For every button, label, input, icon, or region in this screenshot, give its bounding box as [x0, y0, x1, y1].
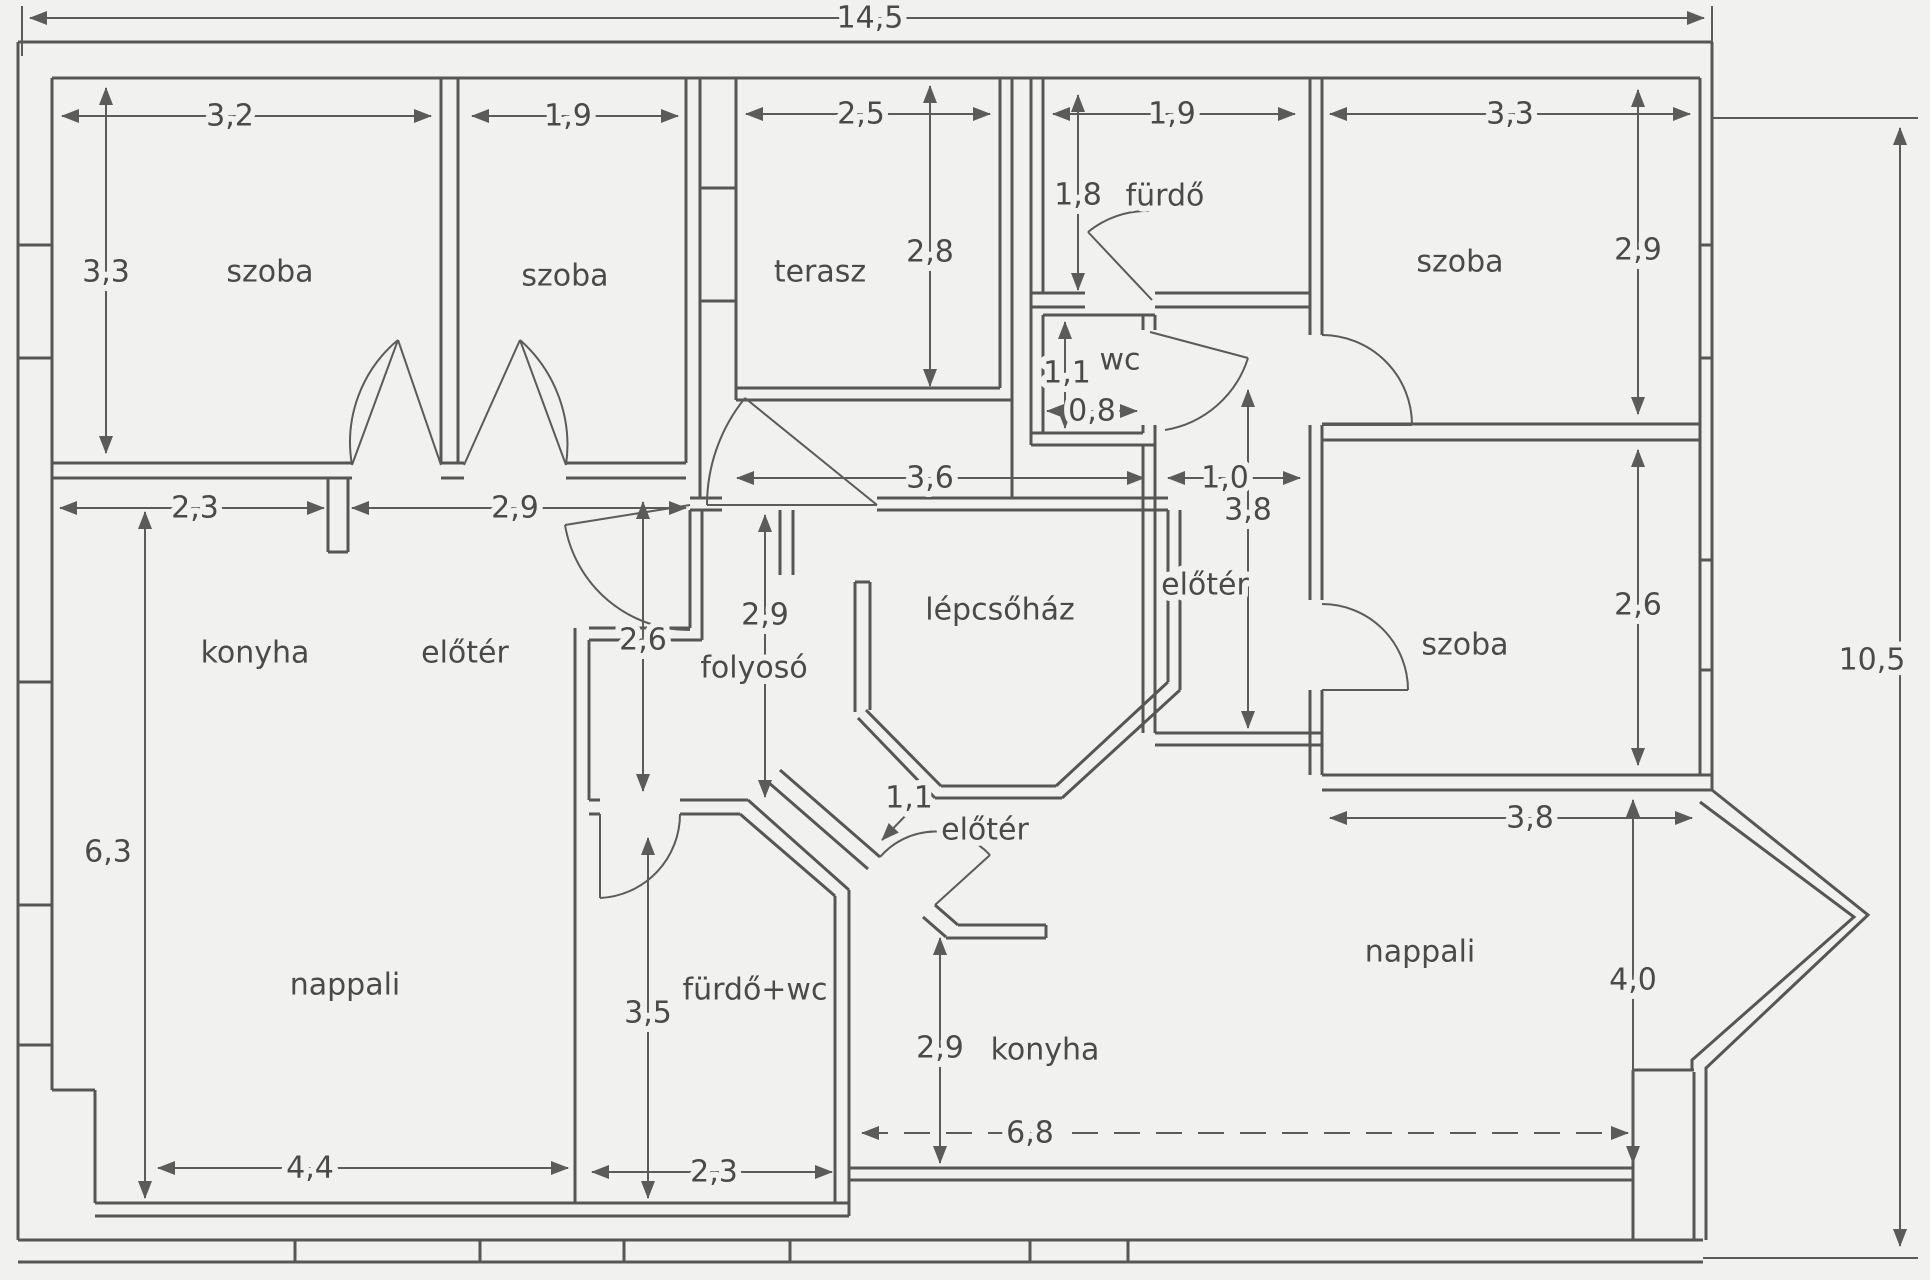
wall-folyoso-left — [690, 510, 702, 640]
wall-lepcsohaz — [855, 510, 1180, 798]
room-label-eloter-bottom: előtér — [941, 813, 1029, 848]
floor-plan-drawing: 14,5 10,5 3,2 1,9 2,5 1,9 3,3 3,3 szoba … — [0, 0, 1930, 1280]
door-szoba2 — [464, 340, 567, 465]
dim-furdo-height: 1,8 — [1054, 178, 1102, 213]
wall-furdowc-right — [835, 890, 849, 1203]
wall-szoba2-terasz — [686, 78, 736, 498]
bottom-wall-mullions — [295, 1240, 1128, 1262]
door-furdowc — [600, 814, 680, 898]
dim-konyha-right-height: 2,9 — [916, 1031, 964, 1066]
door-szoba4 — [1322, 604, 1408, 690]
dim-eloter-left-width: 2,9 — [491, 491, 539, 526]
dim-total-width: 14,5 — [837, 1, 904, 36]
wall-stub-konyha — [328, 478, 348, 552]
utility-shaft — [1633, 1070, 1694, 1240]
wall-szoba1-szoba2 — [441, 78, 458, 463]
door-lepcsohaz-entry — [707, 398, 877, 505]
dim-furdo-width: 1,9 — [1148, 97, 1196, 132]
bay-inner — [1692, 802, 1854, 1070]
dim-eloter-right-height: 3,8 — [1224, 493, 1272, 528]
room-label-konyha-right: konyha — [991, 1033, 1100, 1068]
wall-nappali-right — [575, 628, 589, 1203]
dim-nappali-left-height: 6,3 — [84, 835, 132, 870]
dim-szoba3-height: 2,9 — [1614, 233, 1662, 268]
dim-wc-width: 0,8 — [1068, 394, 1116, 429]
wall-furdo-left — [1031, 78, 1043, 445]
dim-szoba1-height: 3,3 — [82, 255, 130, 290]
dim-furdowc-height: 3,5 — [624, 996, 672, 1031]
door-szoba3 — [1322, 335, 1412, 425]
labels-layer: 14,5 10,5 3,2 1,9 2,5 1,9 3,3 3,3 szoba … — [82, 1, 1905, 1190]
dim-folyoso-height: 2,9 — [741, 598, 789, 633]
wall-szoba3-szoba4 — [1322, 424, 1700, 440]
dim-nappali-right-height: 4,0 — [1609, 963, 1657, 998]
dim-szoba3-width: 3,3 — [1486, 97, 1534, 132]
dim-terasz-width: 2,5 — [837, 97, 885, 132]
room-label-nappali-left: nappali — [290, 968, 401, 1003]
dim-lepcsohaz-width: 3,6 — [906, 461, 954, 496]
room-label-szoba4: szoba — [1421, 628, 1508, 663]
wall-folyoso-right — [780, 510, 793, 575]
dim-eloter-left-door: 2,6 — [619, 623, 667, 658]
wall-szoba-bottom — [52, 463, 686, 478]
dim-nappali-right-width: 6,8 — [1006, 1116, 1054, 1151]
wall-furdowc-top — [589, 800, 748, 814]
room-label-szoba1: szoba — [226, 255, 313, 290]
bay-outer — [1706, 790, 1868, 1240]
dim-szoba2-width: 1,9 — [544, 99, 592, 134]
dim-total-height: 10,5 — [1839, 643, 1906, 678]
wall-furdo-bottom — [1031, 293, 1310, 307]
bottom-left-step — [52, 1090, 95, 1203]
wall-szoba4-bottom — [1322, 775, 1712, 790]
dim-eloter-bottom-door: 1,1 — [885, 781, 933, 816]
door-szoba1 — [350, 340, 441, 465]
room-label-szoba2: szoba — [521, 259, 608, 294]
room-label-terasz: terasz — [774, 255, 866, 290]
room-label-wc: wc — [1099, 343, 1140, 378]
door-furdo — [1088, 211, 1152, 300]
wall-entry-bottom — [946, 925, 1046, 938]
door-eloter-left — [565, 505, 690, 630]
dim-furdowc-width: 2,3 — [690, 1155, 738, 1190]
bottom-wall-right-unit — [849, 1168, 1633, 1180]
dim-eloter-right-width: 1,0 — [1201, 461, 1249, 496]
room-label-lepcsohaz: lépcsőház — [925, 593, 1074, 628]
window-ticks-right — [1700, 245, 1712, 670]
room-label-konyha-left: konyha — [201, 636, 310, 671]
room-label-szoba3: szoba — [1416, 245, 1503, 280]
door-wc — [1150, 332, 1248, 430]
dim-konyha-left-width: 2,3 — [171, 491, 219, 526]
room-label-folyoso: folyosó — [700, 651, 807, 686]
dim-szoba4-width: 3,8 — [1506, 801, 1554, 836]
dim-wc-height: 1,1 — [1043, 356, 1091, 391]
doors-layer — [350, 211, 1412, 905]
window-ticks-left — [18, 245, 52, 1045]
dim-terasz-height: 2,8 — [906, 235, 954, 270]
floor-plan: 14,5 10,5 3,2 1,9 2,5 1,9 3,3 3,3 szoba … — [0, 0, 1930, 1280]
room-label-nappali-right: nappali — [1365, 935, 1476, 970]
room-label-furdowc: fürdő+wc — [683, 973, 828, 1008]
bottom-wall-band — [18, 1240, 1703, 1262]
dim-szoba1-width: 3,2 — [206, 99, 254, 134]
dim-tick-total-height — [1703, 118, 1918, 1258]
dim-arrow-eloter-bottom-door — [882, 812, 909, 840]
room-label-furdo: fürdő — [1126, 179, 1205, 214]
dimension-lines-layer — [22, 6, 1918, 1258]
room-label-eloter-right: előtér — [1161, 568, 1249, 603]
room-label-eloter-left: előtér — [421, 636, 509, 671]
dim-szoba4-height: 2,6 — [1614, 588, 1662, 623]
wall-szoba34-left — [1310, 78, 1322, 775]
dim-nappali-left-width: 4,4 — [286, 1151, 334, 1186]
